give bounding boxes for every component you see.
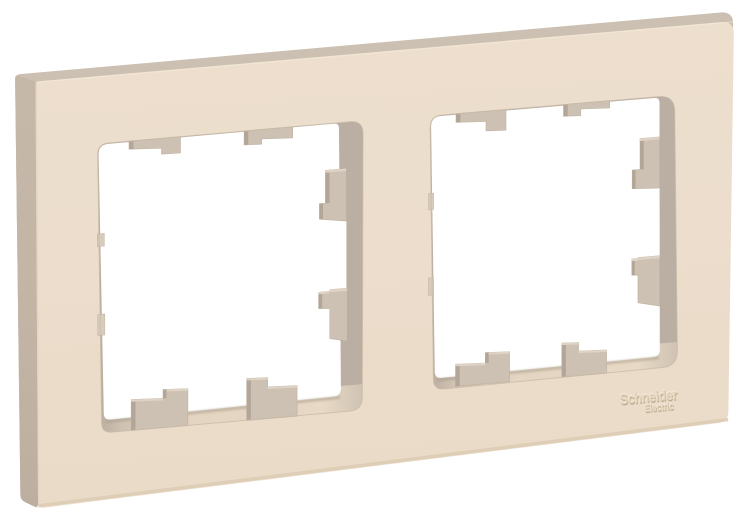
svg-text:Electric: Electric [644, 401, 674, 416]
